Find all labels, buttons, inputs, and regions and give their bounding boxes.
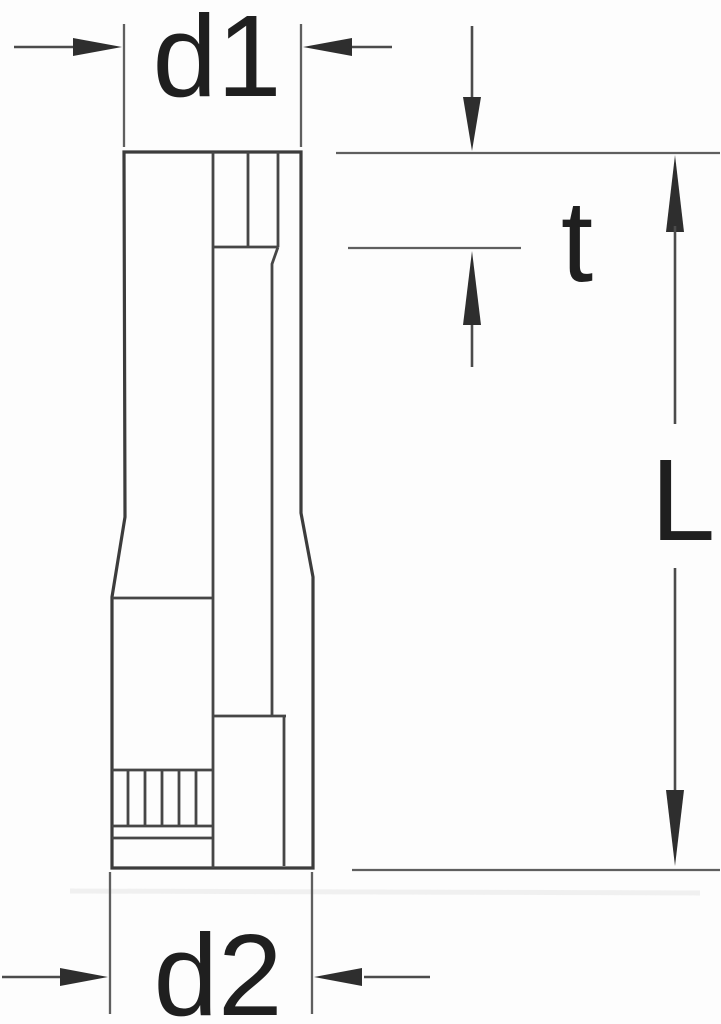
scan-shadow-artifact (70, 891, 700, 893)
dimension-label-t: t (561, 176, 593, 306)
deep-socket-dimension-diagram: d1 t L d2 (0, 0, 721, 1024)
dimension-label-L: L (651, 435, 716, 565)
dimension-label-d1: d1 (152, 0, 281, 121)
technical-drawing-page: d1 t L d2 (0, 0, 721, 1024)
dimension-label-d2: d2 (153, 910, 282, 1024)
